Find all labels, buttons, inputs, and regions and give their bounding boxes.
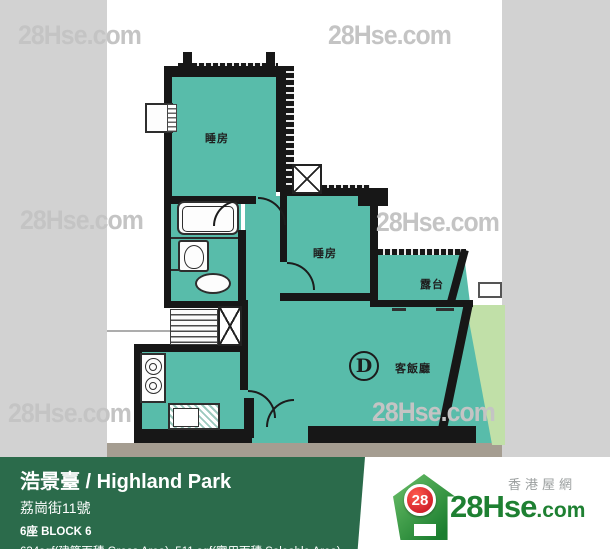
watermark-middle-right: 28Hse.com bbox=[376, 207, 499, 238]
duct-box-lower bbox=[218, 306, 242, 346]
bedroom-1-top-wall bbox=[164, 66, 294, 77]
site-brand-suffix: .com bbox=[536, 499, 585, 522]
wall-stub-right bbox=[266, 52, 275, 67]
kitchen-bottom-wall bbox=[134, 429, 252, 443]
bathroom-divider-1 bbox=[171, 237, 238, 239]
ac-platform-ladder bbox=[167, 104, 177, 132]
bathroom-right-wall bbox=[238, 230, 246, 308]
balcony-railing bbox=[378, 249, 466, 255]
bedroom-1-top-wall-hatch bbox=[178, 63, 278, 66]
floor-plan-image: { "watermark": { "text": "28Hse.com", "c… bbox=[0, 0, 610, 549]
corridor-line bbox=[107, 330, 170, 332]
property-area: 634sqf(建築面積 Gross Area), 511 sqf(實用面積 Sa… bbox=[20, 543, 365, 559]
exterior-window-box bbox=[478, 282, 502, 298]
bedroom-2-left-wall bbox=[280, 196, 287, 262]
kitchen-counter bbox=[168, 403, 220, 430]
stove bbox=[140, 353, 166, 403]
house-logo-door bbox=[414, 524, 436, 536]
unit-letter-badge: D bbox=[349, 351, 379, 381]
balcony-bottom-wall bbox=[378, 300, 473, 307]
bedroom-1-left-wall bbox=[164, 66, 172, 202]
living-dining-label: 客飯廳 bbox=[395, 360, 431, 376]
watermark-top-right: 28Hse.com bbox=[328, 20, 451, 51]
bedroom-2-right-wall bbox=[370, 188, 378, 307]
bedroom-2-bottom-wall bbox=[280, 293, 378, 301]
watermark-middle-left: 28Hse.com bbox=[20, 205, 143, 236]
property-info-bar: 浩景臺 / Highland Park 荔崗街11號 6座 BLOCK 6 63… bbox=[0, 457, 365, 549]
bedroom-1-right-wall bbox=[276, 66, 286, 192]
toilet bbox=[178, 240, 209, 272]
bedroom-2-label: 睡房 bbox=[313, 245, 337, 261]
bathroom-left-wall bbox=[164, 196, 171, 308]
site-brand: 28Hse.com bbox=[450, 489, 585, 525]
duct-box-upper bbox=[292, 164, 322, 194]
bedroom-1-label: 睡房 bbox=[205, 130, 229, 146]
bathroom-sink bbox=[195, 273, 231, 294]
property-address: 荔崗街11號 bbox=[20, 498, 365, 518]
watermark-bottom-right: 28Hse.com bbox=[372, 397, 495, 428]
stairs-area bbox=[170, 309, 218, 345]
wall-stub-left bbox=[183, 52, 192, 67]
site-brand-main: 28Hse bbox=[450, 489, 536, 524]
background-right-strip bbox=[502, 0, 610, 457]
balcony-label: 露台 bbox=[420, 276, 444, 292]
property-title: 浩景臺 / Highland Park bbox=[20, 465, 365, 494]
plan-shadow-band bbox=[107, 443, 502, 457]
watermark-bottom-left: 28Hse.com bbox=[8, 398, 131, 429]
watermark-top-left: 28Hse.com bbox=[18, 20, 141, 51]
logo-28-badge: 28 bbox=[404, 484, 436, 516]
dimension-mark-1 bbox=[392, 308, 406, 311]
site-tagline: 香港屋網 bbox=[508, 474, 576, 493]
dimension-mark-2 bbox=[436, 308, 454, 311]
property-block: 6座 BLOCK 6 bbox=[20, 523, 365, 539]
living-bottom-wall bbox=[308, 426, 476, 443]
